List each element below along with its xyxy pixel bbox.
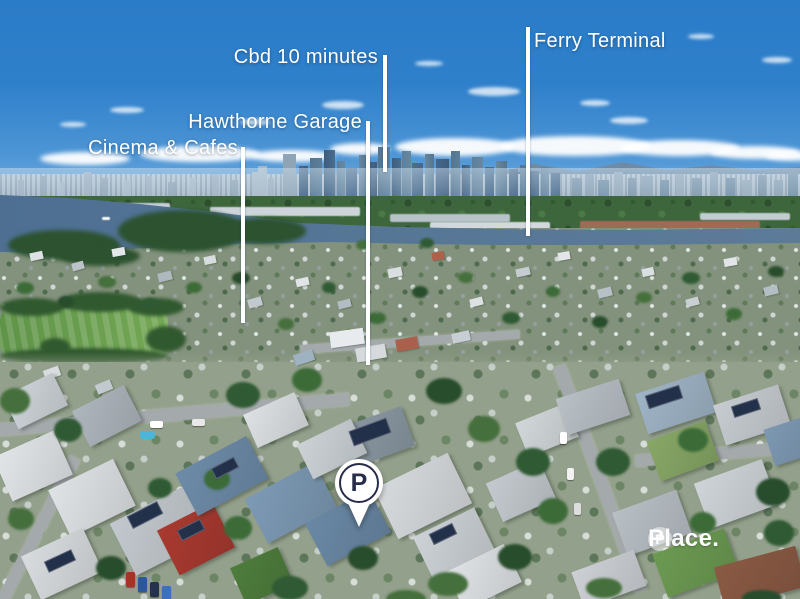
cloud — [762, 57, 792, 63]
tree — [502, 312, 520, 324]
park-trees — [0, 298, 64, 316]
tree — [468, 416, 500, 442]
tree — [426, 378, 462, 404]
tree — [768, 266, 784, 277]
car — [560, 432, 567, 444]
tree — [458, 272, 474, 283]
annotation-line-cbd — [383, 55, 387, 172]
watermark-logo-letter: P — [655, 531, 664, 547]
cloud — [610, 117, 648, 124]
aerial-photo: Ferry Terminal Cbd 10 minutes Hawthorne … — [0, 0, 800, 599]
tree — [16, 282, 34, 294]
tree — [412, 286, 428, 298]
tree — [516, 448, 550, 476]
tree — [186, 282, 202, 293]
tree — [756, 478, 790, 506]
pin-letter: P — [335, 459, 383, 507]
tree — [742, 590, 782, 599]
tree — [96, 556, 126, 580]
annotation-line-hawthorne-garage — [366, 121, 370, 365]
tree — [726, 308, 742, 320]
tree — [420, 238, 434, 248]
annotation-label-ferry-terminal: Ferry Terminal — [534, 30, 666, 53]
tree — [0, 388, 30, 414]
annotation-label-cbd: Cbd 10 minutes — [146, 46, 378, 69]
annotation-label-hawthorne-garage: Hawthorne Garage — [102, 111, 362, 134]
riverbank-trees — [222, 218, 306, 244]
cloud — [60, 122, 86, 127]
tree — [636, 292, 652, 303]
tree — [498, 544, 532, 570]
watermark-logo-icon: P — [648, 527, 672, 551]
cloud — [415, 61, 443, 66]
tree — [54, 418, 82, 442]
tree — [592, 316, 608, 328]
tree — [586, 578, 622, 598]
car — [138, 577, 147, 592]
car — [567, 468, 574, 480]
park-trees — [146, 326, 186, 352]
tree — [98, 276, 116, 288]
bank-building-row — [700, 213, 790, 220]
tree — [546, 286, 560, 297]
tree — [428, 572, 468, 596]
cloud — [580, 100, 610, 106]
tree — [8, 508, 34, 530]
car — [150, 421, 163, 428]
tree — [272, 576, 308, 599]
tree — [678, 428, 708, 452]
cloud — [322, 101, 364, 109]
tree — [682, 272, 700, 284]
tree — [224, 516, 252, 540]
annotation-line-cinema-cafes — [241, 147, 245, 323]
cloud — [468, 87, 520, 96]
annotation-label-cinema-cafes: Cinema & Cafes — [58, 137, 238, 160]
tree — [322, 282, 336, 293]
annotation-line-ferry-terminal — [526, 27, 530, 236]
tree — [764, 520, 794, 546]
car — [574, 503, 581, 515]
cloud — [688, 34, 714, 39]
tree — [348, 546, 378, 570]
property-location-pin: P — [335, 459, 383, 529]
tree — [148, 478, 172, 498]
car — [126, 572, 135, 587]
tree — [226, 382, 260, 408]
car — [162, 586, 171, 599]
tree — [596, 448, 630, 476]
tree — [58, 296, 74, 308]
tree — [278, 318, 294, 330]
car — [192, 419, 205, 426]
tree — [368, 312, 386, 324]
car — [150, 582, 159, 597]
tree — [538, 498, 568, 524]
tree — [142, 298, 158, 310]
bank-building-row — [390, 214, 510, 222]
swimming-pool — [140, 431, 155, 439]
boat — [102, 217, 110, 220]
tree — [292, 368, 322, 392]
